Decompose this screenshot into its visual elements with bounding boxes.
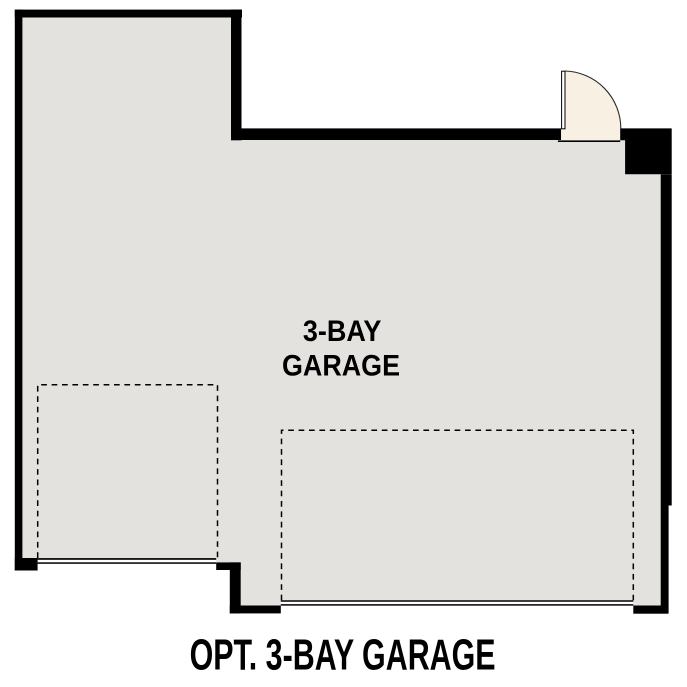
- svg-text:GARAGE: GARAGE: [282, 349, 400, 382]
- svg-text:OPT. 3-BAY GARAGE: OPT. 3-BAY GARAGE: [190, 630, 496, 679]
- svg-text:3-BAY: 3-BAY: [303, 315, 382, 348]
